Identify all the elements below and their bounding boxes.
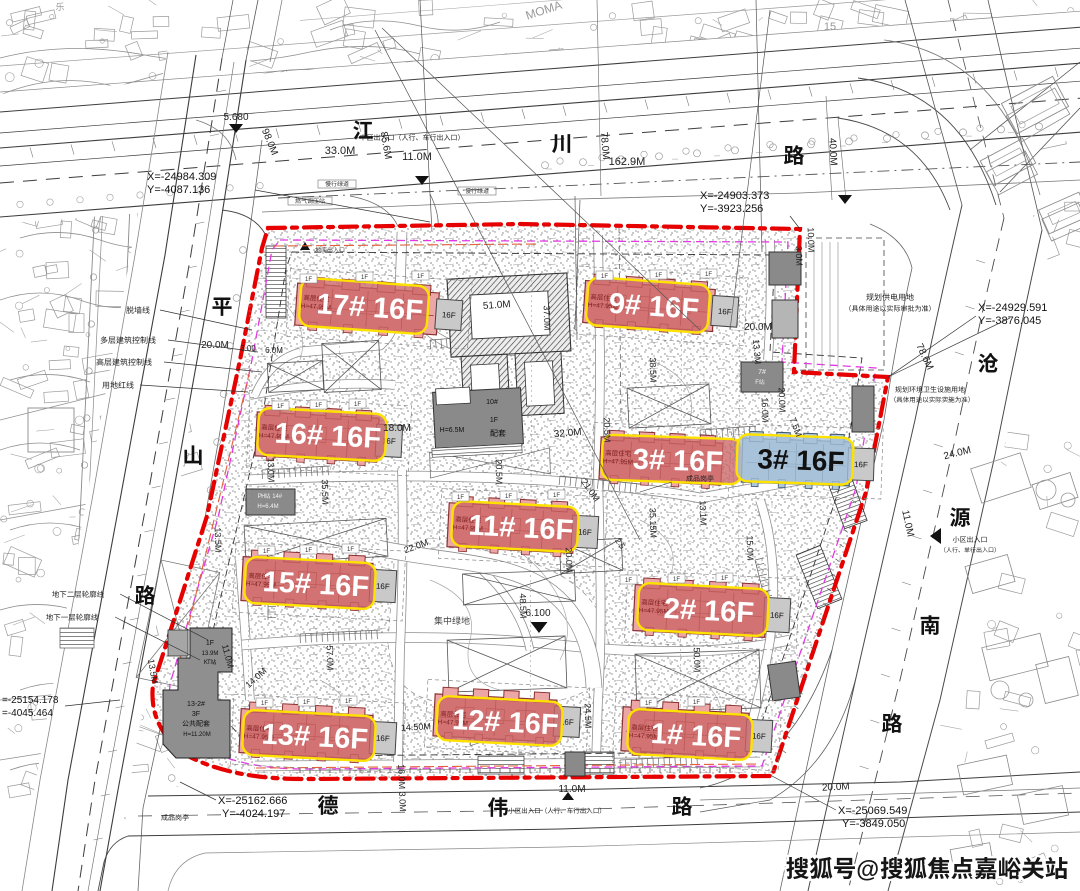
svg-text:1F: 1F [261,701,268,707]
svg-text:3# 16F: 3# 16F [757,443,845,477]
svg-text:1F: 1F [655,273,662,279]
svg-text:16F: 16F [442,310,456,320]
svg-text:35.5M: 35.5M [320,479,331,504]
svg-text:H=6.4M: H=6.4M [257,504,278,510]
svg-text:16F: 16F [854,460,868,469]
svg-text:X=-24984.309: X=-24984.309 [147,171,216,183]
svg-text:Y=-3923.256: Y=-3923.256 [700,203,763,215]
svg-text:1F: 1F [490,417,498,424]
svg-text:1F: 1F [625,578,632,584]
svg-text:12# 16F: 12# 16F [451,704,559,742]
svg-text:20.0M: 20.0M [201,340,229,351]
svg-text:H=11.20M: H=11.20M [183,732,210,738]
svg-text:33.0M: 33.0M [325,145,356,157]
svg-text:7#: 7# [758,369,766,376]
svg-text:15.0M: 15.0M [745,535,756,560]
svg-text:@: @ [856,856,879,882]
svg-text:11.0M: 11.0M [558,784,585,795]
svg-text:51.0M: 51.0M [483,299,511,312]
svg-text:20.5M: 20.5M [494,459,505,484]
svg-text:3# 16F: 3# 16F [632,444,723,479]
svg-text:9# 16F: 9# 16F [608,288,700,326]
svg-text:15: 15 [824,21,836,33]
svg-text:162.9M: 162.9M [609,156,646,168]
svg-text:1F: 1F [345,699,352,705]
svg-text:1# 16F: 1# 16F [650,718,742,755]
svg-text:Y=-3876.045: Y=-3876.045 [978,315,1041,327]
svg-text:16F: 16F [770,611,784,621]
svg-text:11# 16F: 11# 16F [468,510,574,547]
svg-text:57.0M: 57.0M [325,645,336,670]
svg-text:16.0M 3.0M: 16.0M 3.0M [396,764,408,812]
svg-text:1F: 1F [673,577,680,583]
svg-text:Y=-4024.197: Y=-4024.197 [222,808,285,820]
svg-text:1F: 1F [305,277,312,283]
svg-text:13-2#: 13-2# [187,701,205,708]
svg-text:1F: 1F [206,640,214,647]
svg-text:20.0M: 20.0M [777,387,788,412]
svg-text:2# 16F: 2# 16F [663,593,755,630]
svg-text:16F: 16F [376,582,390,592]
svg-text:1F: 1F [505,494,512,500]
svg-text:14.50M: 14.50M [401,721,432,733]
svg-text:1F: 1F [277,404,284,410]
svg-text:16F: 16F [376,734,390,744]
svg-text:Y=-4087.136: Y=-4087.136 [147,184,210,196]
svg-text:16F: 16F [578,528,592,538]
svg-text:1F: 1F [645,701,652,707]
svg-text:=-25154.178: =-25154.178 [2,695,59,706]
svg-text:24.5M: 24.5M [583,703,594,728]
svg-text:Y=-3849.050: Y=-3849.050 [842,818,905,830]
svg-text:15# 16F: 15# 16F [262,566,370,604]
svg-text:1F: 1F [721,576,728,582]
svg-text:X=-24929.591: X=-24929.591 [978,302,1047,314]
svg-text:16F: 16F [752,732,766,742]
svg-text:10#: 10# [486,399,498,406]
svg-text:1F: 1F [693,700,700,706]
svg-text:40.0M: 40.0M [826,138,838,166]
svg-text:11.0M: 11.0M [402,151,432,163]
svg-text:35.15M: 35.15M [647,508,658,538]
svg-text:1F: 1F [347,547,354,553]
svg-text:H=47.95M: H=47.95M [603,458,633,466]
svg-text:X=-24903.373: X=-24903.373 [700,190,769,202]
svg-text:13.0M: 13.0M [266,457,277,482]
svg-text:16# 16F: 16# 16F [274,417,382,455]
svg-text:10.0M: 10.0M [806,227,817,252]
svg-text:F: F [755,380,759,386]
svg-text:37.0M: 37.0M [542,305,553,330]
svg-text:13.9M: 13.9M [202,651,219,657]
svg-text:H: H [261,494,265,500]
svg-text:3F: 3F [192,711,200,718]
svg-text:20.0M: 20.0M [564,547,575,572]
svg-text:13# 16F: 13# 16F [261,718,369,756]
svg-text:20.0M: 20.0M [822,781,850,793]
svg-text:H=6.5M: H=6.5M [440,427,465,434]
svg-text:18.0M: 18.0M [383,423,411,434]
svg-text:6.0M: 6.0M [265,346,283,355]
svg-text:1F: 1F [553,493,560,499]
svg-text:T: T [207,660,211,666]
svg-text:20.5M: 20.5M [602,417,613,442]
svg-text:1F: 1F [417,274,424,280]
svg-text:13.5M: 13.5M [213,527,224,552]
svg-text:1F: 1F [305,548,312,554]
svg-text:1F: 1F [263,549,270,555]
svg-text:1F: 1F [705,272,712,278]
svg-text:13.1M: 13.1M [698,500,709,525]
svg-text:1F: 1F [601,274,608,280]
svg-text:=-4045.464: =-4045.464 [2,708,53,719]
svg-text:3.0M: 3.0M [794,246,805,266]
svg-text:16F: 16F [718,307,732,317]
svg-text:5.680: 5.680 [223,112,248,123]
svg-text:1F: 1F [303,700,310,706]
svg-text:X=-25069.549: X=-25069.549 [838,805,907,817]
svg-text:20.0M: 20.0M [744,322,772,333]
svg-text:X=-25162.666: X=-25162.666 [218,795,287,807]
svg-text:1F: 1F [354,402,361,408]
svg-text:50.0M: 50.0M [692,647,703,672]
svg-text:1F: 1F [361,275,368,281]
svg-text:1F: 1F [457,495,464,501]
svg-text:38.5M: 38.5M [648,357,659,382]
svg-text:1F: 1F [315,403,322,409]
svg-text:16.0M: 16.0M [760,397,771,422]
svg-text:6.100: 6.100 [525,608,550,619]
